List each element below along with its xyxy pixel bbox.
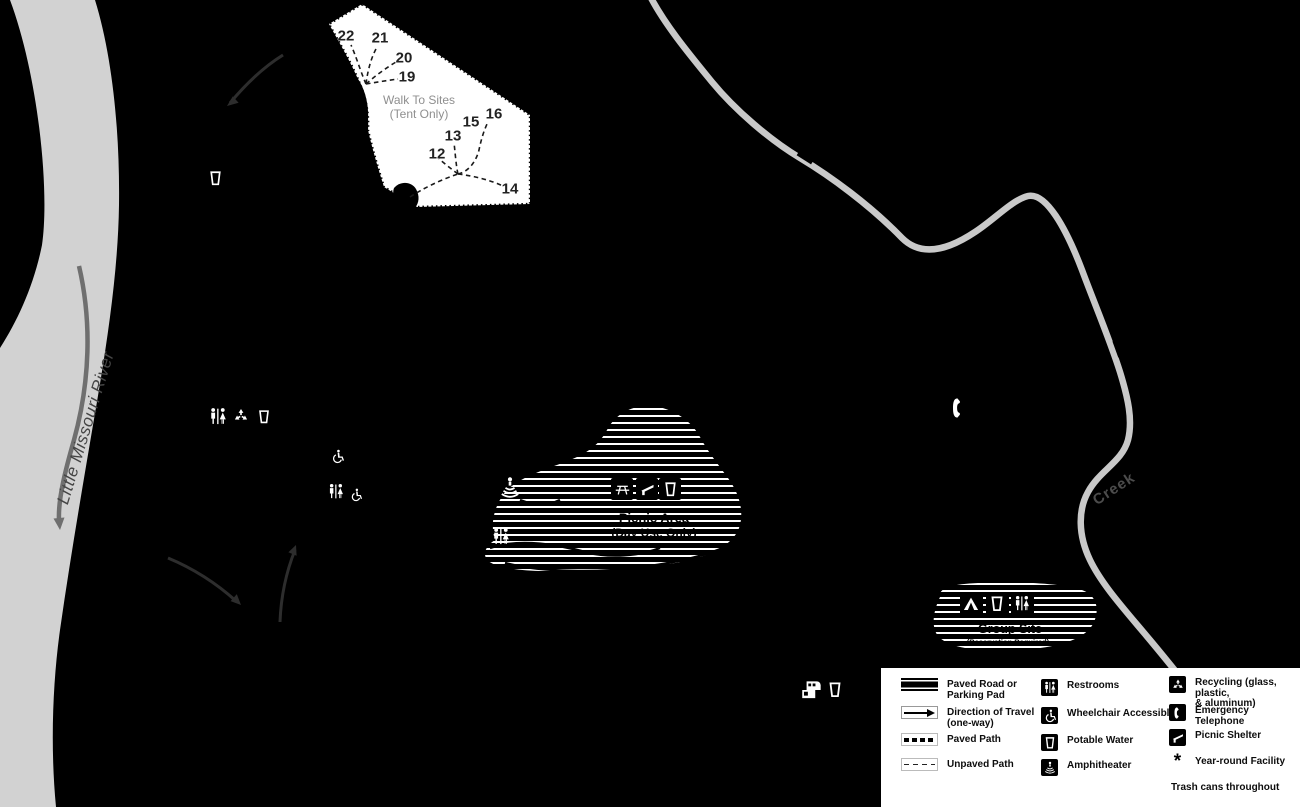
amphitheater-icon (1041, 759, 1058, 776)
legend-item-label: Emergency Telephone (1195, 704, 1300, 727)
travel-arrowheads (227, 96, 297, 605)
picnic-shelter-icon (1169, 729, 1186, 746)
legend-item-amphitheater: Amphitheater (1041, 759, 1131, 776)
picnic-area-sublabel: (Day Use Only) (611, 526, 696, 540)
legend-item-label: Paved Path (947, 733, 1001, 746)
site-number-20: 20 (396, 50, 413, 67)
dump-station-icon (799, 677, 825, 703)
paved-road-swatch (901, 678, 938, 691)
site-number-12: 12 (429, 146, 446, 163)
site-number-16: 16 (486, 106, 503, 123)
recycling-icon (232, 407, 250, 425)
legend: Paved Road or Parking PadDirection of Tr… (881, 668, 1300, 807)
emergency-telephone-icon (947, 396, 971, 420)
legend-footnote: Trash cans throughout (1171, 782, 1279, 793)
restrooms-icon (327, 483, 345, 501)
paved-path-swatch (901, 733, 938, 746)
site-number-22: 22 (338, 28, 355, 45)
wheelchair-accessible-icon (330, 449, 345, 464)
walk-to-sites-sublabel: (Tent Only) (390, 107, 449, 121)
legend-item-label: Wheelchair Accessible (1067, 707, 1175, 720)
legend-item-wheelchair-accessible: Wheelchair Accessible (1041, 707, 1175, 724)
legend-item-potable-water: Potable Water (1041, 734, 1133, 751)
site-number-15: 15 (463, 114, 480, 131)
potable-water-icon (256, 409, 272, 425)
group-site-sublabel: (Reservation Required) (967, 638, 1050, 647)
legend-item-picnic-shelter: Picnic Shelter (1169, 729, 1261, 746)
legend-item-label: Unpaved Path (947, 758, 1014, 771)
picnic-area-label: Picnic Area (619, 511, 689, 526)
legend-item-label: Restrooms (1067, 679, 1119, 692)
legend-item-emergency-telephone: Emergency Telephone (1169, 704, 1300, 727)
potable-water-icon (826, 681, 844, 699)
restrooms-icon (1011, 593, 1034, 616)
legend-item-label: Picnic Shelter (1195, 729, 1261, 742)
site-number-14: 14 (502, 181, 519, 198)
legend-item-unpaved-path: Unpaved Path (901, 758, 1014, 771)
site-number-13: 13 (445, 128, 462, 145)
unpaved-path-swatch (901, 758, 938, 771)
potable-water-icon (986, 593, 1009, 616)
legend-item-direction: Direction of Travel (one-way) (901, 706, 1034, 729)
tent-icon (960, 593, 983, 616)
legend-item-asterisk: *Year-round Facility (1169, 755, 1285, 769)
restrooms-icon (1041, 679, 1058, 696)
direction-swatch (901, 706, 938, 719)
legend-item-restrooms: Restrooms (1041, 679, 1119, 696)
potable-water-icon (659, 478, 681, 500)
restrooms-icon (491, 527, 511, 547)
picnic-shelter-icon (636, 478, 658, 500)
legend-item-label: Amphitheater (1067, 759, 1131, 772)
group-site-label: Group Site (978, 622, 1042, 636)
restrooms-icon (208, 407, 228, 427)
walk-to-sites-label: Walk To Sites (383, 93, 455, 107)
travel-arrows (168, 55, 295, 622)
asterisk-icon: * (1169, 755, 1186, 769)
campground-map: Little Missouri River Creek Walk To Site… (0, 0, 1300, 807)
legend-item-label: Direction of Travel (one-way) (947, 706, 1034, 729)
legend-item-label: Paved Road or Parking Pad (947, 678, 1017, 701)
legend-item-paved-road: Paved Road or Parking Pad (901, 678, 1017, 701)
picnic-table-icon (611, 478, 633, 500)
legend-item-paved-path: Paved Path (901, 733, 1001, 746)
legend-item-label: Potable Water (1067, 734, 1133, 747)
amphitheater-icon (498, 476, 522, 500)
site-number-19: 19 (399, 69, 416, 86)
legend-item-label: Year-round Facility (1195, 755, 1285, 768)
wheelchair-accessible-icon (1041, 707, 1058, 724)
recycling-icon (1169, 676, 1186, 693)
potable-water-icon (207, 170, 224, 187)
wheelchair-accessible-icon (349, 488, 363, 502)
site-number-21: 21 (372, 30, 389, 47)
emergency-telephone-icon (1169, 704, 1186, 721)
potable-water-icon (1041, 734, 1058, 751)
